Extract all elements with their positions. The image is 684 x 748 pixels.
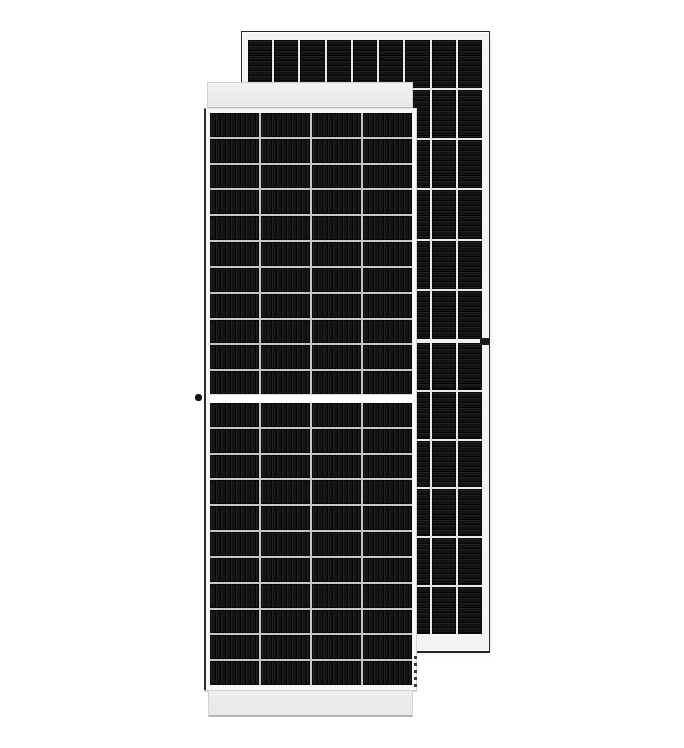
grounding-hole-mark <box>480 338 489 345</box>
solar-cell <box>363 320 412 344</box>
solar-cell <box>312 635 361 659</box>
solar-cell <box>261 403 310 427</box>
solar-cell <box>363 294 412 318</box>
solar-cell <box>363 635 412 659</box>
front-panel-bottom-frame <box>208 690 413 717</box>
solar-cell <box>210 455 259 479</box>
solar-cell <box>261 268 310 292</box>
solar-cell <box>210 165 259 189</box>
front-panel-top-frame <box>207 82 413 108</box>
solar-cell <box>458 343 482 390</box>
solar-cell <box>312 320 361 344</box>
solar-cell <box>312 165 361 189</box>
solar-cell <box>261 320 310 344</box>
solar-cell <box>261 635 310 659</box>
solar-cell <box>312 268 361 292</box>
solar-cell <box>432 40 456 88</box>
solar-cell <box>312 403 361 427</box>
solar-cell <box>363 139 412 163</box>
solar-cell <box>363 403 412 427</box>
solar-cell <box>363 268 412 292</box>
solar-cell <box>458 538 482 585</box>
solar-cell <box>312 113 361 137</box>
solar-cell <box>312 661 361 685</box>
frame-edge-dash-shadow <box>414 656 417 690</box>
front-cell-grid-bottom <box>210 403 412 685</box>
solar-cell <box>432 343 456 390</box>
solar-cell <box>312 558 361 582</box>
solar-cell <box>210 429 259 453</box>
solar-cell <box>261 242 310 266</box>
solar-cell <box>210 506 259 530</box>
solar-cell <box>363 506 412 530</box>
solar-cell <box>210 584 259 608</box>
solar-cell <box>312 345 361 369</box>
solar-cell <box>432 190 456 238</box>
solar-cell <box>312 584 361 608</box>
solar-cell <box>261 165 310 189</box>
solar-cell <box>458 489 482 536</box>
solar-cell <box>363 584 412 608</box>
solar-cell <box>261 139 310 163</box>
solar-cell <box>312 216 361 240</box>
solar-cell <box>363 661 412 685</box>
solar-cell <box>210 610 259 634</box>
solar-cell <box>210 532 259 556</box>
solar-cell <box>210 268 259 292</box>
solar-cell <box>432 538 456 585</box>
solar-cell <box>432 441 456 488</box>
solar-cell <box>261 506 310 530</box>
solar-cell <box>458 40 482 88</box>
solar-cell <box>210 320 259 344</box>
solar-cell <box>458 392 482 439</box>
solar-cell <box>458 90 482 138</box>
solar-cell <box>432 291 456 339</box>
half-cell-divider <box>210 395 412 403</box>
solar-cell <box>363 480 412 504</box>
solar-cell <box>363 610 412 634</box>
solar-cell <box>312 294 361 318</box>
solar-cell <box>261 371 310 395</box>
solar-cell <box>261 480 310 504</box>
solar-cell <box>363 558 412 582</box>
solar-cell <box>312 506 361 530</box>
solar-cell <box>432 392 456 439</box>
solar-cell <box>363 165 412 189</box>
solar-cell <box>261 584 310 608</box>
solar-cell <box>210 242 259 266</box>
solar-cell <box>210 190 259 214</box>
grounding-dot <box>195 394 202 401</box>
solar-cell <box>432 140 456 188</box>
solar-cell <box>458 441 482 488</box>
solar-cell <box>261 532 310 556</box>
solar-cell <box>312 371 361 395</box>
solar-cell <box>312 139 361 163</box>
solar-cell <box>210 371 259 395</box>
solar-cell <box>312 480 361 504</box>
front-solar-panel <box>204 82 417 717</box>
solar-cell <box>261 455 310 479</box>
solar-cell <box>458 241 482 289</box>
solar-cell <box>261 345 310 369</box>
solar-cell <box>210 661 259 685</box>
solar-cell <box>274 40 298 88</box>
solar-cell <box>432 587 456 634</box>
solar-cell <box>300 40 324 88</box>
solar-cell <box>363 429 412 453</box>
solar-cell <box>458 587 482 634</box>
solar-cell <box>210 345 259 369</box>
solar-cell <box>210 558 259 582</box>
solar-cell <box>261 294 310 318</box>
solar-cell <box>432 241 456 289</box>
solar-cell <box>363 532 412 556</box>
solar-cell <box>458 291 482 339</box>
solar-cell <box>312 190 361 214</box>
solar-cell <box>210 139 259 163</box>
solar-cell <box>432 489 456 536</box>
solar-cell <box>458 140 482 188</box>
solar-cell <box>327 40 351 88</box>
solar-cell <box>261 216 310 240</box>
solar-cell <box>432 90 456 138</box>
solar-cell <box>210 294 259 318</box>
solar-cell <box>210 403 259 427</box>
solar-cell <box>312 455 361 479</box>
solar-cell <box>353 40 377 88</box>
front-panel-glass <box>204 108 417 690</box>
solar-cell <box>261 558 310 582</box>
solar-cell <box>458 190 482 238</box>
solar-cell <box>210 216 259 240</box>
front-cell-grid-top <box>210 113 412 395</box>
solar-cell <box>261 190 310 214</box>
solar-cell <box>312 532 361 556</box>
solar-cell <box>363 216 412 240</box>
solar-cell <box>210 635 259 659</box>
solar-cell <box>363 371 412 395</box>
product-photo-stage <box>0 0 684 748</box>
solar-cell <box>261 610 310 634</box>
solar-cell <box>261 429 310 453</box>
solar-cell <box>261 661 310 685</box>
solar-cell <box>363 345 412 369</box>
solar-cell <box>261 113 310 137</box>
solar-cell <box>405 40 429 88</box>
solar-cell <box>363 113 412 137</box>
solar-cell <box>379 40 403 88</box>
front-panel-laminate <box>210 113 412 685</box>
solar-cell <box>248 40 272 88</box>
solar-cell <box>363 242 412 266</box>
solar-cell <box>312 610 361 634</box>
solar-cell <box>312 242 361 266</box>
solar-cell <box>210 480 259 504</box>
solar-cell <box>363 190 412 214</box>
solar-cell <box>312 429 361 453</box>
solar-cell <box>210 113 259 137</box>
solar-cell <box>363 455 412 479</box>
